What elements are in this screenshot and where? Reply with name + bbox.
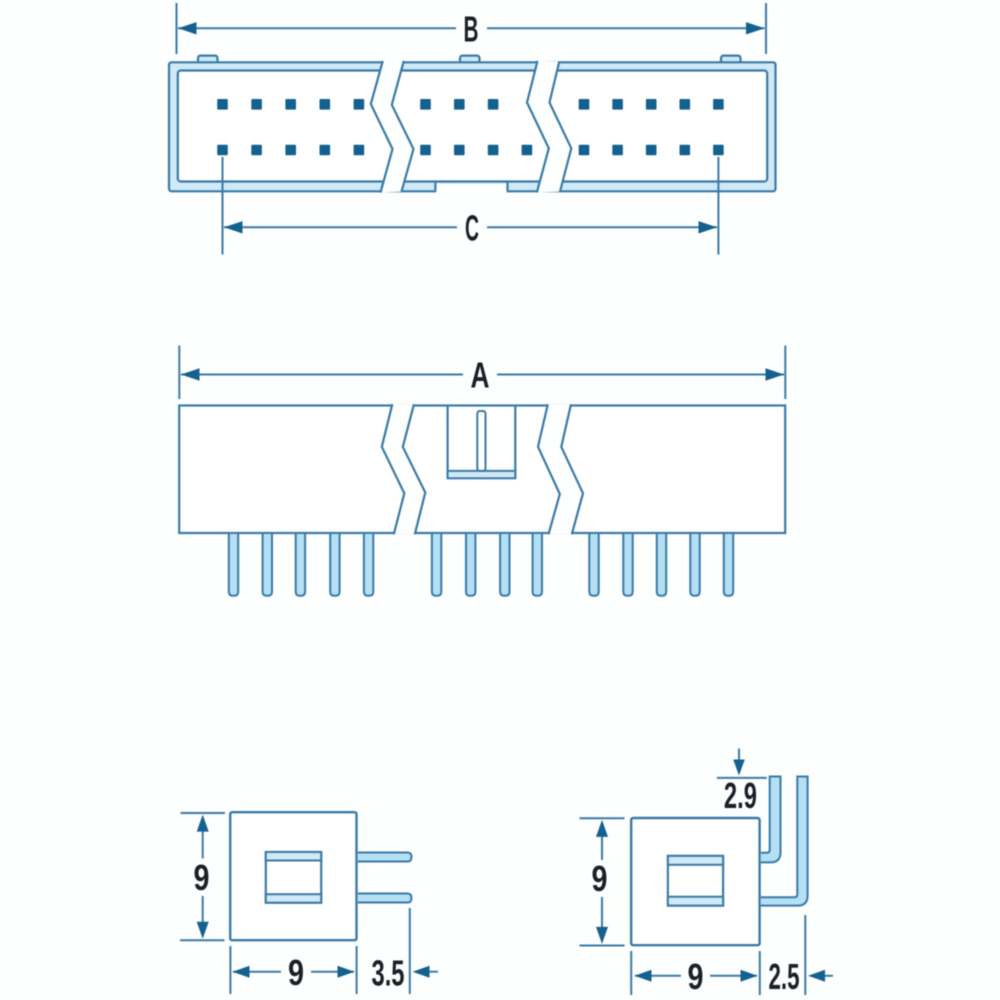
svg-text:B: B xyxy=(464,8,479,49)
svg-text:9: 9 xyxy=(688,956,704,997)
svg-text:C: C xyxy=(465,207,479,248)
svg-text:9: 9 xyxy=(194,857,210,898)
svg-text:A: A xyxy=(471,355,490,396)
svg-text:3.5: 3.5 xyxy=(372,953,405,994)
svg-text:9: 9 xyxy=(288,952,304,993)
svg-text:2.9: 2.9 xyxy=(724,775,757,816)
svg-text:9: 9 xyxy=(592,858,608,899)
svg-text:2.5: 2.5 xyxy=(769,956,800,997)
